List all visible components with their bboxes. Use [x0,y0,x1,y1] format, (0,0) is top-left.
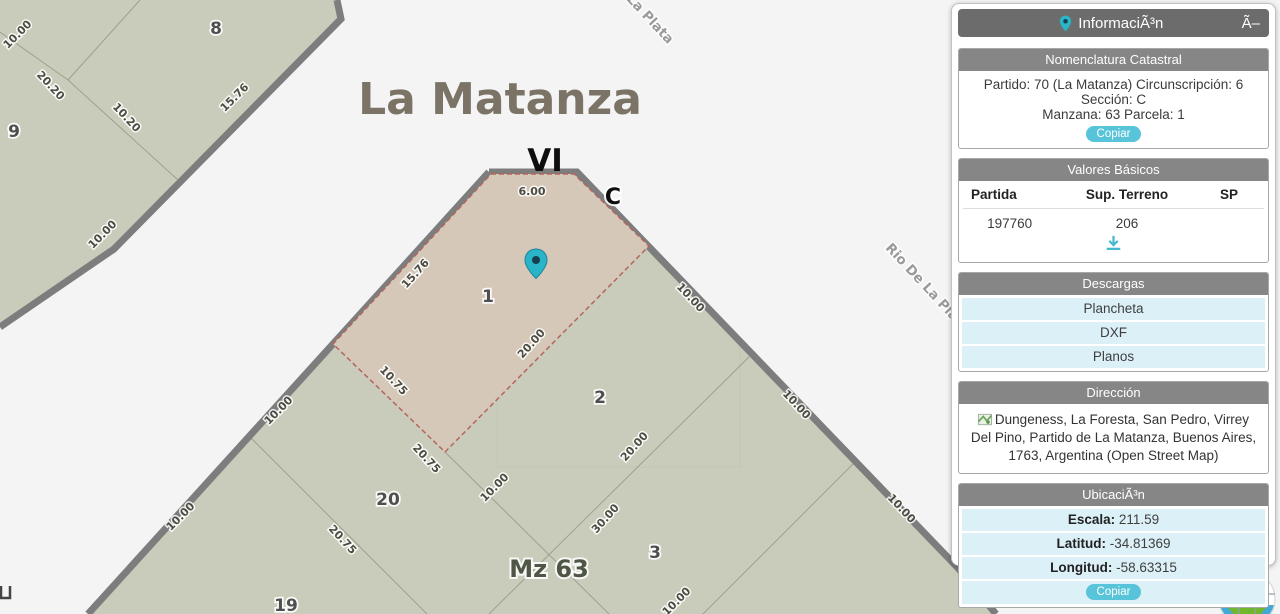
app-root: { "map": { "city_label": "La Matanza", "… [0,0,1280,614]
latitude-label: Latitud: [1056,536,1106,551]
parcel-number: 20 [376,490,400,510]
close-button[interactable]: Ã– [1242,16,1260,31]
direccion-text: Dungeness, La Foresta, San Pedro, Virrey… [971,412,1256,463]
cell-sup-terreno: 206 [1056,209,1197,233]
section-header-descargas: Descargas [959,273,1268,295]
copy-nomenclatura-button[interactable]: Copiar [1086,126,1142,142]
parcel-number: 2 [594,388,606,408]
nomenclatura-body: Partido: 70 (La Matanza) Circunscripción… [959,71,1268,148]
section-roman-label: VI [527,143,563,179]
valores-table: Partida Sup. Terreno SP 197760 206 [963,183,1264,233]
download-icon[interactable] [1105,235,1122,251]
city-label: La Matanza [358,74,642,125]
download-link-plancheta[interactable]: Plancheta [962,298,1265,320]
ubicacion-body: Escala: 211.59 Latitud: -34.81369 Longit… [959,506,1268,607]
parcel-number: 8 [210,19,222,39]
parcel-number: 1 [482,287,494,307]
download-link-planos[interactable]: Planos [962,346,1265,368]
info-panel: InformaciÃ³n Ã– Nomenclatura Catastral P… [951,3,1276,566]
direccion-body: Dungeness, La Foresta, San Pedro, Virrey… [959,404,1268,473]
measurement-label: 6.00 [518,185,545,198]
scale-row: Escala: 211.59 [962,509,1265,531]
longitude-row: Longitud: -58.63315 [962,557,1265,579]
section-descargas: Descargas Plancheta DXF Planos [958,272,1269,372]
map-icon [978,413,992,426]
section-ubicacion: UbicaciÃ³n Escala: 211.59 Latitud: -34.8… [958,483,1269,608]
download-link-dxf[interactable]: DXF [962,322,1265,344]
parcel-number: 9 [8,122,20,142]
block-label: Mz 63 [509,555,589,583]
col-header-sp: SP [1198,183,1264,209]
cell-partida: 197760 [963,209,1056,233]
panel-header: InformaciÃ³n Ã– [958,9,1269,37]
section-header-ubicacion: UbicaciÃ³n [959,484,1268,506]
download-row [963,233,1264,258]
parcel-number: 3 [649,543,661,563]
cell-sp [1198,209,1264,233]
section-valores: Valores Básicos Partida Sup. Terreno SP … [958,158,1269,263]
nomenclatura-line2: Manzana: 63 Parcela: 1 [964,107,1263,122]
scale-value: 211.59 [1119,512,1159,527]
pin-icon [1059,15,1072,32]
valores-body: Partida Sup. Terreno SP 197760 206 [959,181,1268,262]
scale-label: Escala: [1068,512,1115,527]
zone-label: C [605,185,621,210]
parcel-number: 19 [274,596,298,614]
section-direccion: Dirección Dungeness, La Foresta, San Ped… [958,381,1269,474]
panel-title-wrap: InformaciÃ³n [981,15,1242,32]
copy-location-button[interactable]: Copiar [1086,584,1142,600]
descargas-body: Plancheta DXF Planos [959,295,1268,371]
copy-location-row: Copiar [962,581,1265,604]
latitude-value: -34.81369 [1110,536,1171,551]
longitude-label: Longitud: [1050,560,1112,575]
latitude-row: Latitud: -34.81369 [962,533,1265,555]
longitude-value: -58.63315 [1116,560,1177,575]
panel-title: InformaciÃ³n [1078,15,1163,32]
col-header-sup-terreno: Sup. Terreno [1056,183,1197,209]
section-header-direccion: Dirección [959,382,1268,404]
section-header-valores: Valores Básicos [959,159,1268,181]
section-header-nomenclatura: Nomenclatura Catastral [959,49,1268,71]
col-header-partida: Partida [963,183,1056,209]
section-nomenclatura: Nomenclatura Catastral Partido: 70 (La M… [958,48,1269,149]
nomenclatura-line1: Partido: 70 (La Matanza) Circunscripción… [964,77,1263,107]
